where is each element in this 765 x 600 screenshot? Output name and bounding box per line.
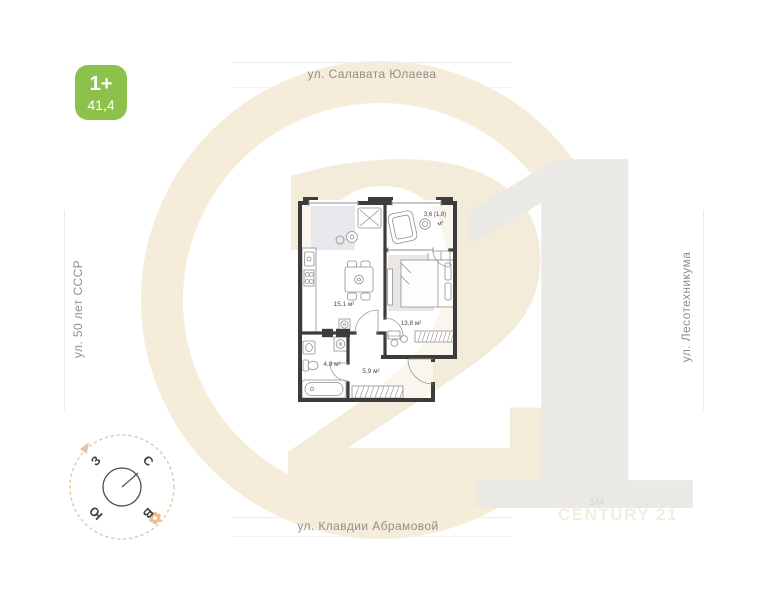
compass-rose: С В Ю З <box>60 425 184 549</box>
top-street-line-2 <box>232 87 512 88</box>
room-label-kitchen-living: 15,1 м² <box>334 301 355 308</box>
hall-closet <box>352 386 403 398</box>
street-label-right: ул. Лесотехникума <box>679 227 693 387</box>
bed <box>401 260 454 307</box>
total-area-label: 41,4 <box>87 98 114 112</box>
bathroom-sink <box>303 341 315 354</box>
compass-west-label: З <box>88 453 104 469</box>
room-label-bedroom: 13,8 м² <box>401 320 422 327</box>
bathtub <box>302 380 346 398</box>
left-street-line <box>64 210 65 410</box>
dresser <box>388 269 393 305</box>
armchair <box>358 208 381 228</box>
compass-north-label: С <box>140 453 156 469</box>
room-label-balcony: 3,6 (1,8) <box>424 212 446 218</box>
bottom-street-line <box>232 517 512 518</box>
shaft-box <box>322 329 333 337</box>
radiator <box>415 331 454 342</box>
right-street-line <box>703 210 704 410</box>
compass-south-label: Ю <box>86 503 105 522</box>
apartment-type-badge: 1+ 41,4 <box>75 65 127 120</box>
room-label-hallway: 5,9 м² <box>362 368 379 375</box>
living-rug <box>311 206 355 250</box>
shaft-box <box>336 329 350 337</box>
kitchen-counter <box>302 248 316 333</box>
toilet <box>303 360 318 371</box>
room-label-bathroom: 4,8 м² <box>323 361 340 368</box>
compass-arrow-icon <box>80 442 89 454</box>
street-label-left: ул. 50 лет СССР <box>71 229 85 389</box>
bottom-street-line-2 <box>232 536 512 537</box>
washing-machine <box>334 337 347 351</box>
wall-pier <box>368 197 393 203</box>
room-count-label: 1+ <box>90 74 113 94</box>
floor-plan: 15,1 м² 13,8 м² 4,8 м² 5,9 м² 3,6 (1,8) … <box>288 193 462 409</box>
street-label-bottom: ул. Клавдии Абрамовой <box>218 519 518 533</box>
street-label-top: ул. Салавата Юлаева <box>222 67 522 81</box>
top-street-line <box>232 62 512 63</box>
brand-name-watermark: CENTURY 21 <box>558 505 678 525</box>
balcony-table <box>420 219 430 229</box>
kitchen-appliance-icon <box>339 319 350 330</box>
